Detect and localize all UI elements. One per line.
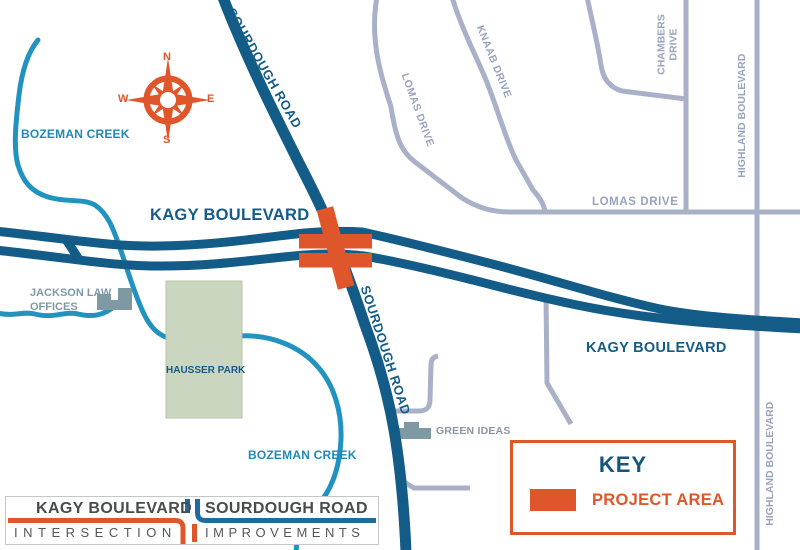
project-map: SOURDOUGH ROAD BOZEMAN CREEK LOMAS DRIVE… <box>0 0 800 550</box>
project-area-highlight <box>299 206 372 290</box>
hausser-park-area <box>166 281 242 418</box>
label-highland-boulevard-top: HIGHLAND BOULEVARD <box>737 54 749 178</box>
label-green-ideas: GREEN IDEAS <box>436 426 511 438</box>
label-chambers-drive: CHAMBERS DRIVE <box>656 0 679 105</box>
sourdough-road <box>222 0 406 550</box>
road-south-branch <box>546 295 571 424</box>
label-bozeman-creek-top: BOZEMAN CREEK <box>21 128 130 141</box>
project-logo: KAGY BOULEVARD SOURDOUGH ROAD INTERSECTI… <box>5 496 379 545</box>
compass-west-label: W <box>118 93 128 105</box>
label-kagy-boulevard-right: KAGY BOULEVARD <box>586 341 727 357</box>
key-title: KEY <box>513 452 733 478</box>
label-chambers-line1: CHAMBERS <box>655 14 667 75</box>
project-area-swatch <box>530 489 576 511</box>
label-jackson-line2: OFFICES <box>30 301 78 313</box>
logo-word2-label: IMPROVEMENTS <box>205 525 364 540</box>
label-jackson-law-offices: JACKSON LAW OFFICES <box>30 287 111 315</box>
label-jackson-line1: JACKSON LAW <box>30 287 111 299</box>
road-south-access <box>396 477 470 488</box>
project-area-label: PROJECT AREA <box>592 491 724 510</box>
label-kagy-boulevard-left: KAGY BOULEVARD <box>150 206 309 224</box>
label-hausser-park: HAUSSER PARK <box>166 365 242 376</box>
label-lomas-drive-horizontal: LOMAS DRIVE <box>592 196 678 209</box>
logo-road1-label: KAGY BOULEVARD <box>36 500 192 518</box>
project-area-kagy-bar-top <box>299 234 372 249</box>
compass-east-label: E <box>207 93 214 105</box>
road-knaab <box>452 0 545 212</box>
label-bozeman-creek-bottom: BOZEMAN CREEK <box>248 449 357 462</box>
label-highland-boulevard-bottom: HIGHLAND BOULEVARD <box>765 402 777 526</box>
green-ideas-building <box>396 422 431 439</box>
logo-road2-label: SOURDOUGH ROAD <box>205 500 368 518</box>
key-row: PROJECT AREA <box>513 489 733 511</box>
compass-rose <box>126 58 210 142</box>
compass-north-label: N <box>163 51 171 63</box>
label-chambers-line2: DRIVE <box>667 29 679 61</box>
project-area-kagy-bar-bottom <box>299 253 372 268</box>
compass-center <box>160 92 176 108</box>
compass-south-label: S <box>163 134 170 146</box>
logo-word1-label: INTERSECTION <box>14 525 177 540</box>
key-panel: KEY PROJECT AREA <box>510 440 736 535</box>
